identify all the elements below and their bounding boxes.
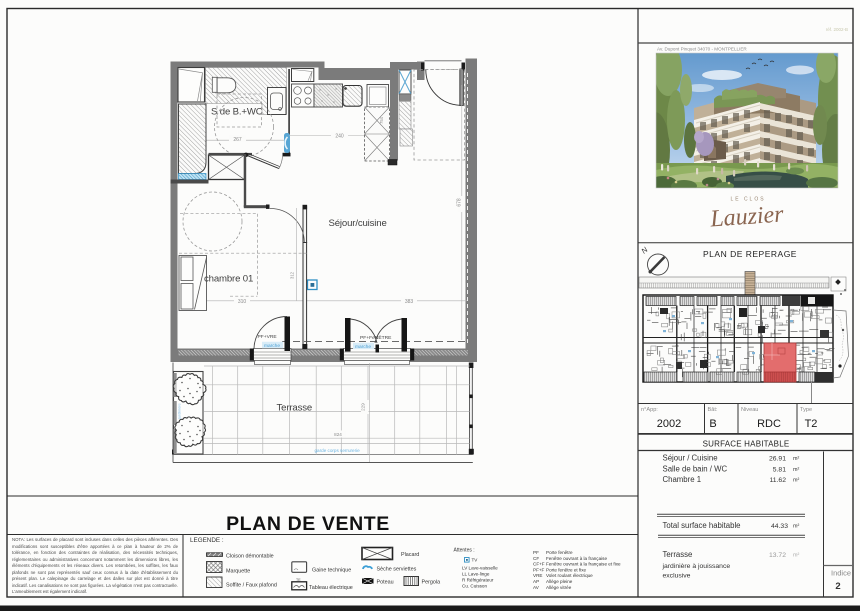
svg-text:229: 229: [361, 403, 366, 411]
svg-text:Poteau: Poteau: [377, 580, 394, 586]
svg-text:Tableau électrique: Tableau électrique: [309, 585, 353, 591]
svg-text:Salle de bain / WC: Salle de bain / WC: [663, 465, 728, 474]
svg-text:m²: m²: [793, 524, 799, 530]
svg-text:Lauzier: Lauzier: [708, 201, 785, 232]
svg-text:LL Lave-linge: LL Lave-linge: [462, 572, 490, 577]
svg-text:Av. Dupont Pinquet 34070 - MO: Av. Dupont Pinquet 34070 - MONTPELLIER: [657, 47, 747, 52]
svg-text:LE CLOS: LE CLOS: [730, 197, 765, 203]
svg-text:824: 824: [334, 432, 342, 437]
svg-text:PLAN DE VENTE: PLAN DE VENTE: [226, 513, 390, 535]
svg-text:Sèche serviettes: Sèche serviettes: [377, 567, 417, 573]
svg-text:m²: m²: [793, 456, 799, 462]
svg-text:réf. 2002-B: réf. 2002-B: [826, 27, 848, 32]
svg-text:678: 678: [457, 198, 463, 207]
svg-text:Indice: Indice: [831, 569, 851, 578]
svg-text:Gaine technique: Gaine technique: [312, 568, 351, 574]
svg-text:Fenêtre ouvrant à la française: Fenêtre ouvrant à la française et fixe: [546, 562, 621, 567]
svg-text:AP: AP: [533, 579, 539, 584]
svg-text:jardinière: jardinière: [178, 403, 182, 420]
svg-text:B: B: [709, 418, 716, 430]
svg-text:AV: AV: [533, 585, 540, 590]
svg-text:Soffite / Faux plafond: Soffite / Faux plafond: [226, 583, 277, 589]
svg-text:26.91: 26.91: [769, 456, 786, 463]
svg-text:m²: m²: [793, 553, 799, 559]
svg-text:Cloison démontable: Cloison démontable: [226, 554, 274, 560]
svg-text:310: 310: [238, 299, 247, 305]
svg-text:n°App:: n°App:: [641, 407, 658, 413]
svg-text:RDC: RDC: [757, 418, 781, 430]
svg-text:TV: TV: [472, 558, 479, 563]
svg-text:267: 267: [233, 137, 242, 143]
svg-text:240: 240: [335, 134, 344, 140]
svg-text:Séjour / Cuisine: Séjour / Cuisine: [663, 454, 718, 463]
svg-text:Séjour/cuisine: Séjour/cuisine: [329, 218, 387, 229]
svg-text:Pergola: Pergola: [422, 580, 441, 586]
svg-text:chambre 01: chambre 01: [204, 274, 253, 285]
svg-text:Terrasse: Terrasse: [277, 403, 313, 414]
svg-text:2: 2: [835, 581, 840, 592]
svg-text:Fenêtre ouvrant à la française: Fenêtre ouvrant à la française: [546, 556, 607, 561]
svg-text:CF+F: CF+F: [533, 562, 545, 567]
svg-text:Porte fenêtre et fixe: Porte fenêtre et fixe: [546, 567, 587, 572]
svg-text:Niveau: Niveau: [741, 407, 758, 413]
svg-text:Allège vitrée: Allège vitrée: [546, 585, 572, 590]
svg-text:Allège pleine: Allège pleine: [546, 579, 573, 584]
svg-text:LV Lave-vaisselle: LV Lave-vaisselle: [462, 566, 498, 571]
svg-text:5.81: 5.81: [773, 467, 786, 474]
svg-text:312: 312: [290, 271, 295, 279]
svg-text:PLAN DE REPERAGE: PLAN DE REPERAGE: [703, 249, 797, 259]
svg-text:13.72: 13.72: [769, 552, 786, 559]
svg-text:marche: marche: [355, 344, 371, 350]
svg-text:Bât:: Bât:: [708, 407, 718, 413]
svg-text:383: 383: [405, 299, 414, 305]
svg-text:754: 754: [379, 116, 384, 124]
svg-text:Attentes :: Attentes :: [454, 548, 475, 554]
svg-text:exclusive: exclusive: [663, 573, 691, 580]
svg-text:marche: marche: [264, 343, 280, 349]
svg-text:Placard: Placard: [401, 552, 419, 558]
svg-text:garde corps serrurerie: garde corps serrurerie: [315, 448, 361, 453]
svg-text:PF: PF: [533, 550, 539, 555]
svg-text:jardinière à jouissance: jardinière à jouissance: [662, 563, 731, 570]
svg-text:Total surface habitable: Total surface habitable: [663, 521, 741, 530]
svg-text:PF+VRE: PF+VRE: [258, 334, 278, 340]
svg-text:Terrasse: Terrasse: [663, 550, 693, 559]
svg-text:Volet roulant électrique: Volet roulant électrique: [546, 573, 593, 578]
svg-text:VRE: VRE: [533, 573, 542, 578]
svg-text:Cu. Cuisson: Cu. Cuisson: [462, 584, 487, 589]
svg-text:LEGENDE :: LEGENDE :: [190, 537, 224, 544]
svg-text:CF: CF: [533, 556, 539, 561]
svg-text:Marquette: Marquette: [226, 569, 250, 575]
svg-text:m²: m²: [793, 467, 799, 473]
svg-text:SURFACE HABITABLE: SURFACE HABITABLE: [703, 440, 790, 449]
svg-text:Chambre 1: Chambre 1: [663, 475, 702, 484]
svg-text:m²: m²: [793, 478, 799, 484]
svg-text:S de B.+WC: S de B.+WC: [211, 107, 263, 118]
svg-text:T2: T2: [805, 418, 818, 430]
svg-text:Type: Type: [800, 407, 812, 413]
svg-text:11.62: 11.62: [769, 477, 786, 484]
svg-text:R Réfrigérateur: R Réfrigérateur: [462, 578, 494, 583]
svg-text:44.33: 44.33: [771, 523, 788, 530]
svg-text:PF+F: PF+F: [533, 567, 545, 572]
svg-text:2002: 2002: [657, 418, 681, 430]
svg-text:Porte fenêtre: Porte fenêtre: [546, 550, 573, 555]
